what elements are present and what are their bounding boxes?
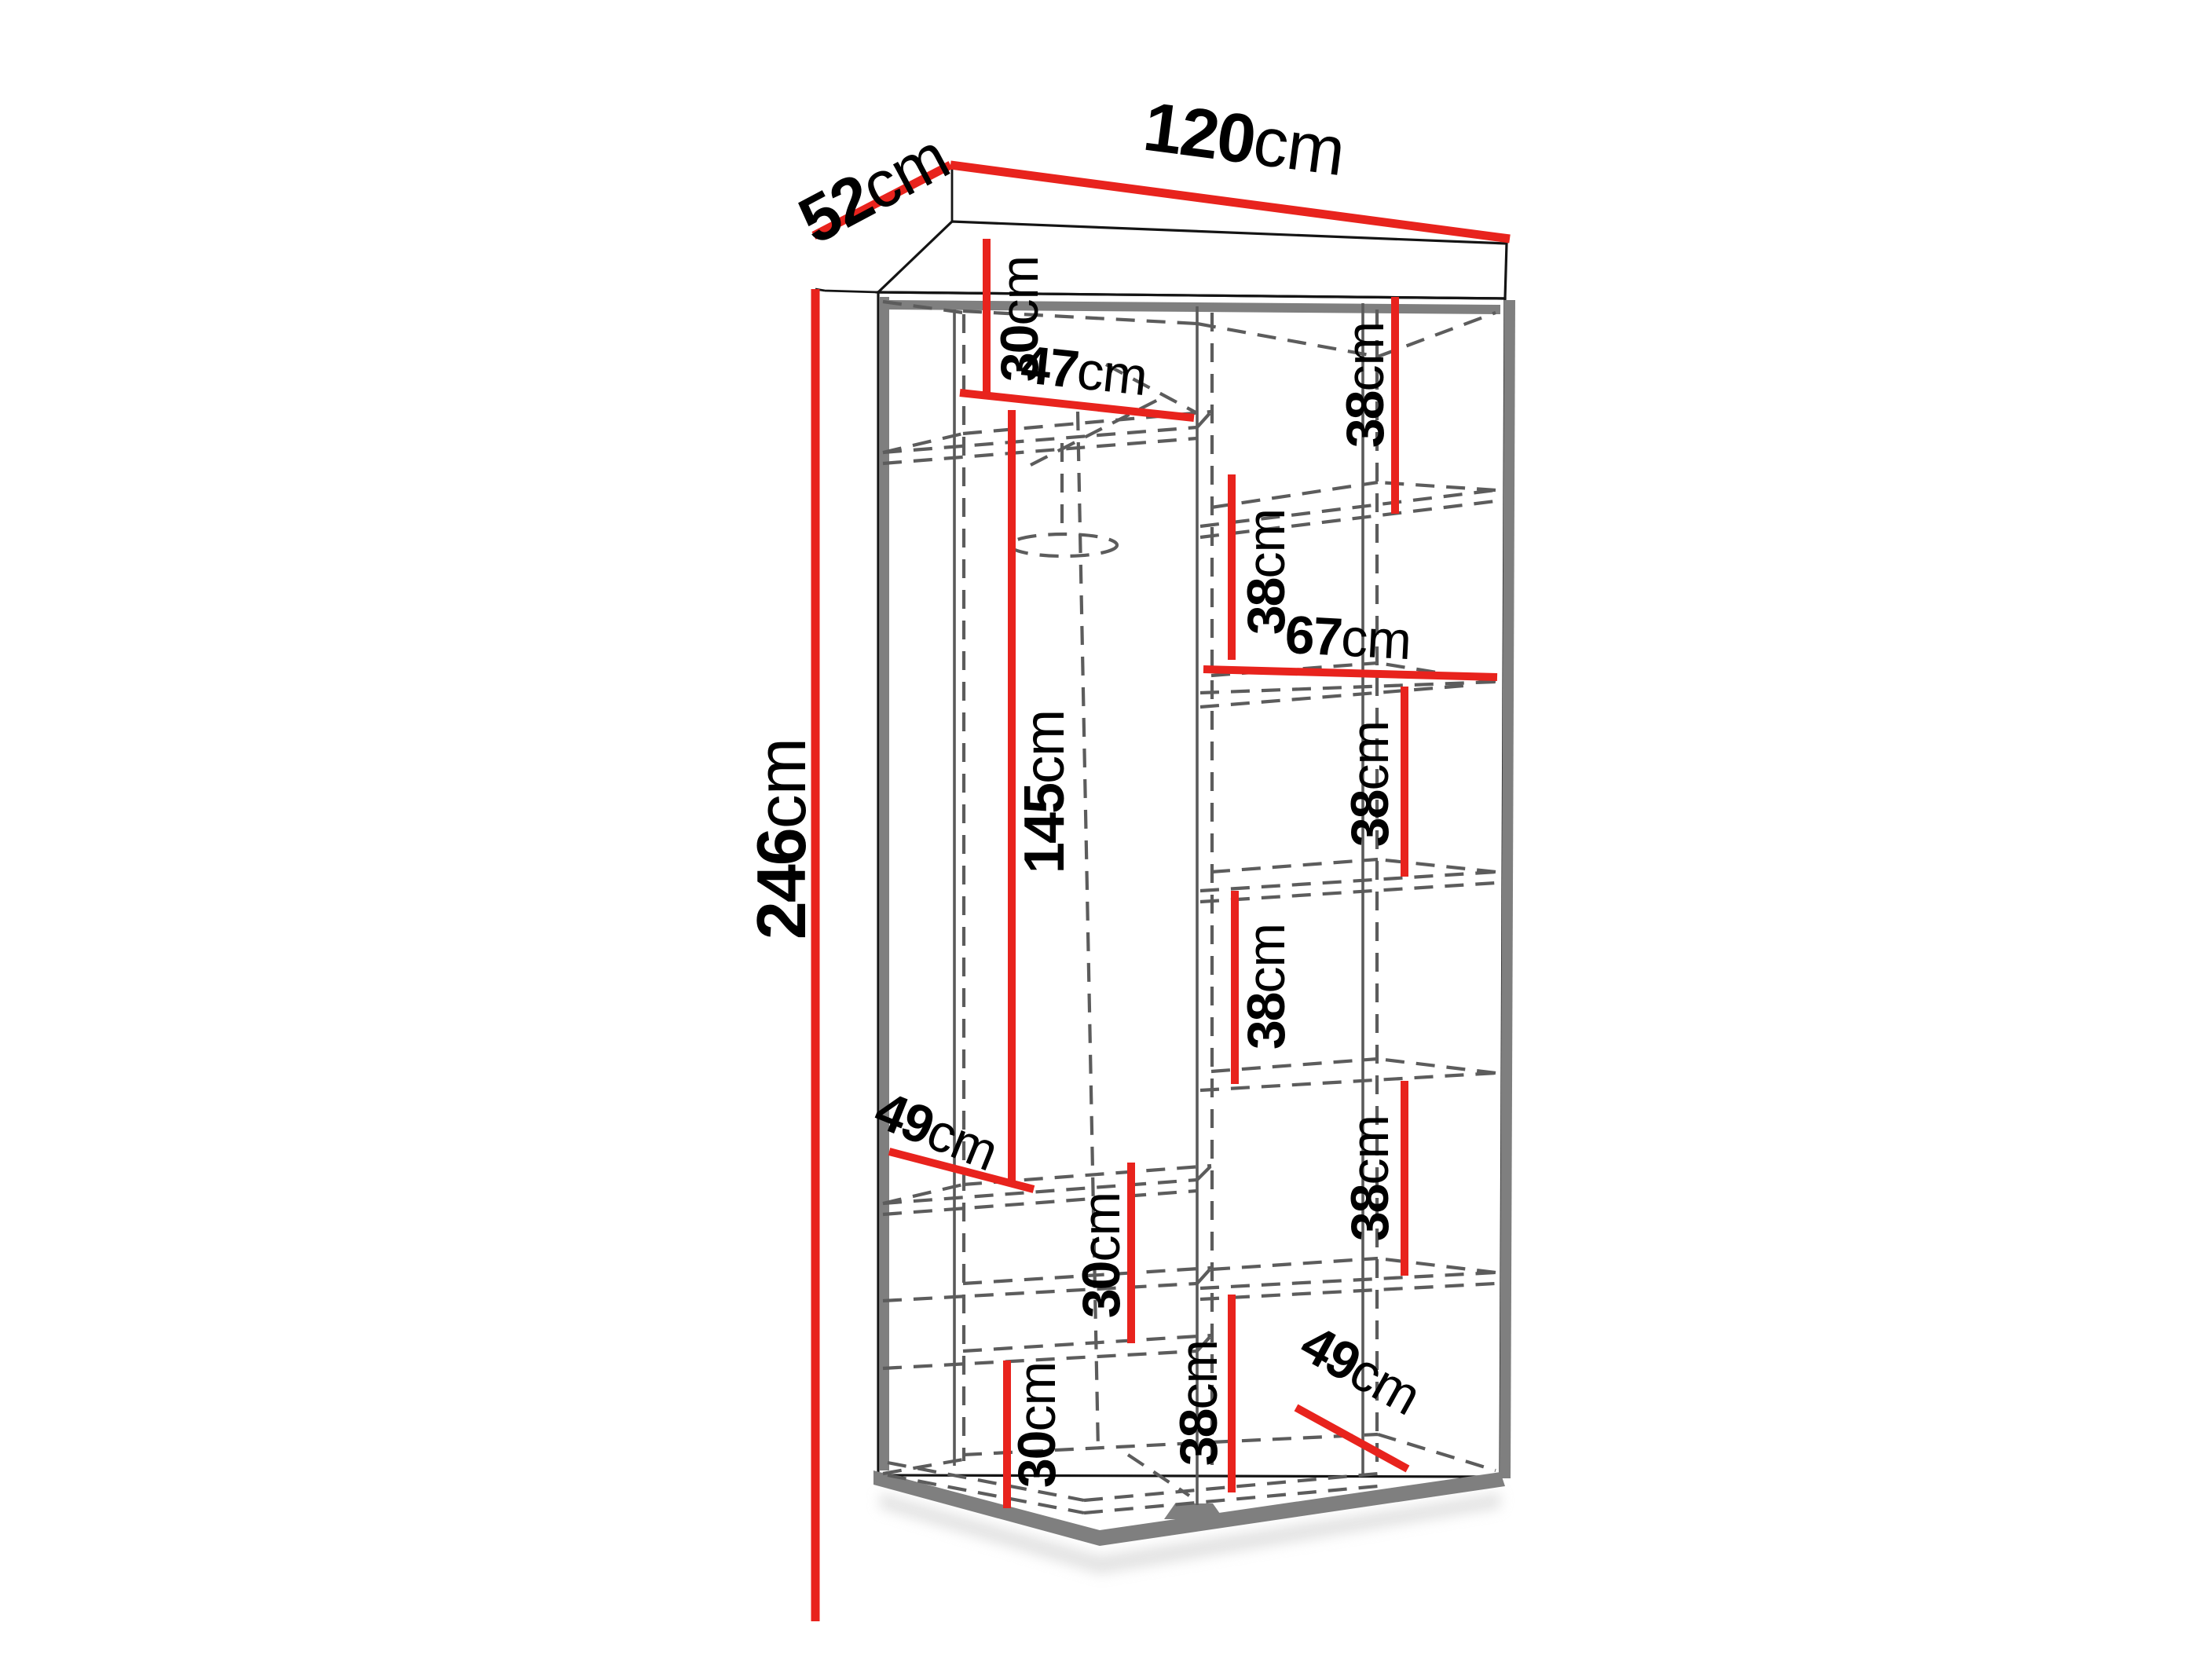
dimension-label-right-shelf-w: 67cm xyxy=(1284,605,1412,671)
carcass-top-inner-edge xyxy=(883,305,1500,309)
dimension-label-right-depth: 49cm xyxy=(1291,1313,1430,1426)
dimension-label-hanging-h: 145cm xyxy=(1013,710,1076,873)
partition-foot xyxy=(1164,1503,1224,1519)
wardrobe-dimension-diagram: 120cm52cm246cm30cm47cm38cm38cm67cm38cm14… xyxy=(0,0,2212,1659)
dimension-label-mid-lower-h: 38cm xyxy=(1236,924,1296,1049)
dimension-line-right-shelf-w xyxy=(1203,669,1497,677)
diagram-canvas: 120cm52cm246cm30cm47cm38cm38cm67cm38cm14… xyxy=(0,0,2212,1659)
dimension-label-height-left: 246cm xyxy=(742,738,820,939)
dimension-label-width-top: 120cm xyxy=(1140,86,1350,190)
dimension-label-left-shelf-w: 47cm xyxy=(1018,335,1149,407)
dimension-label-right-lower-h: 38cm xyxy=(1340,1115,1400,1241)
cabinet-top-face xyxy=(878,222,1507,298)
dimension-label-bottom-mid-h: 38cm xyxy=(1169,1340,1229,1466)
carcass-right-outer-edge xyxy=(1505,300,1510,1478)
dimension-label-right-top-h: 38cm xyxy=(1335,322,1395,448)
dimension-label-cubby-lower-h: 30cm xyxy=(1007,1362,1067,1488)
dimension-label-right-mid-h: 38cm xyxy=(1340,721,1400,847)
dimension-label-cubby-upper-h: 30cm xyxy=(1071,1192,1131,1318)
hidden-edges xyxy=(883,302,1496,1513)
cabinet-front-outline xyxy=(878,292,1505,1477)
